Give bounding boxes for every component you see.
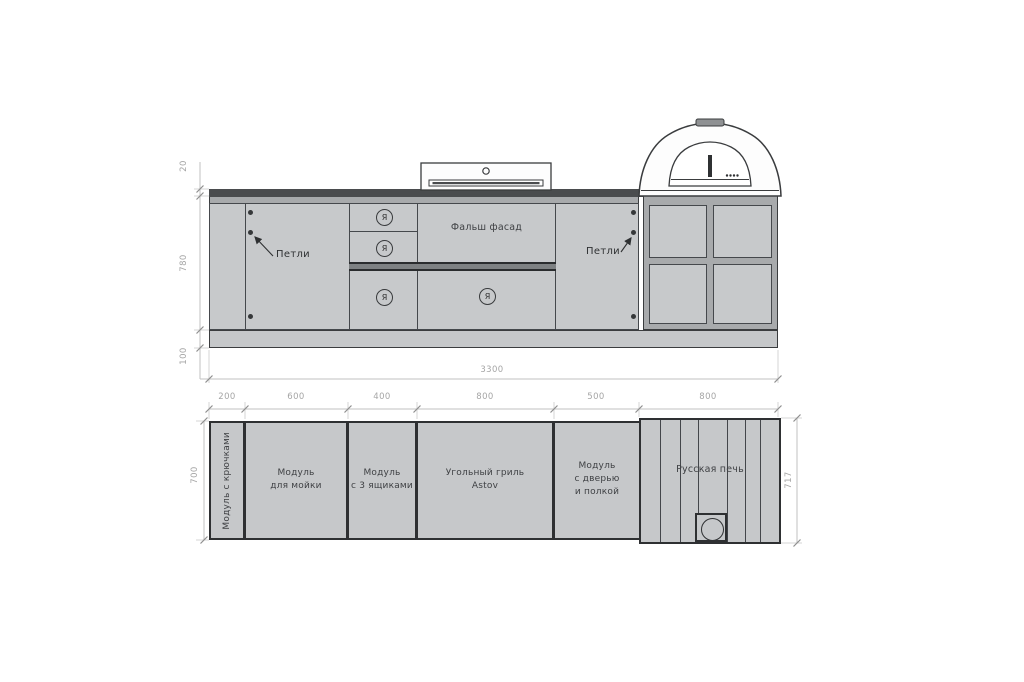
plan-view: Модуль с крючками Модуль для мойки Модул…	[0, 0, 1024, 682]
plank-line	[727, 420, 728, 542]
plan-module-drawers-label: Модуль с 3 ящиками	[348, 467, 416, 493]
dim-200-label: 200	[207, 392, 247, 402]
outdoor-kitchen-drawing: Я Я Я Я Петли Петли Фальш фасад 20 780 1…	[0, 0, 1024, 682]
dim-800-label: 800	[465, 392, 505, 402]
plank-line	[760, 420, 761, 542]
dim-depth-left-label: 700	[189, 458, 201, 492]
plank-line	[660, 420, 661, 542]
plank-line	[680, 420, 681, 542]
dim-400-label: 400	[362, 392, 402, 402]
plan-module-door-shelf-label: Модуль с дверью и полкой	[554, 460, 640, 499]
chimney-circle-icon	[701, 518, 724, 541]
plan-module-grill-label: Угольный гриль Astov	[417, 467, 553, 493]
dim-600-label: 600	[276, 392, 316, 402]
dim-depth-right-label: 717	[783, 463, 795, 497]
dim-500-label: 500	[576, 392, 616, 402]
plank-line	[745, 420, 746, 542]
plan-module-oven-label: Русская печь	[650, 463, 770, 477]
plan-module-hooks: Модуль с крючками	[209, 421, 246, 540]
chimney-opening	[695, 513, 727, 542]
plan-module-hooks-label: Модуль с крючками	[221, 432, 234, 530]
plan-module-sink-label: Модуль для мойки	[245, 467, 347, 493]
dim-800b-label: 800	[688, 392, 728, 402]
plan-module-russian-oven	[639, 418, 781, 544]
